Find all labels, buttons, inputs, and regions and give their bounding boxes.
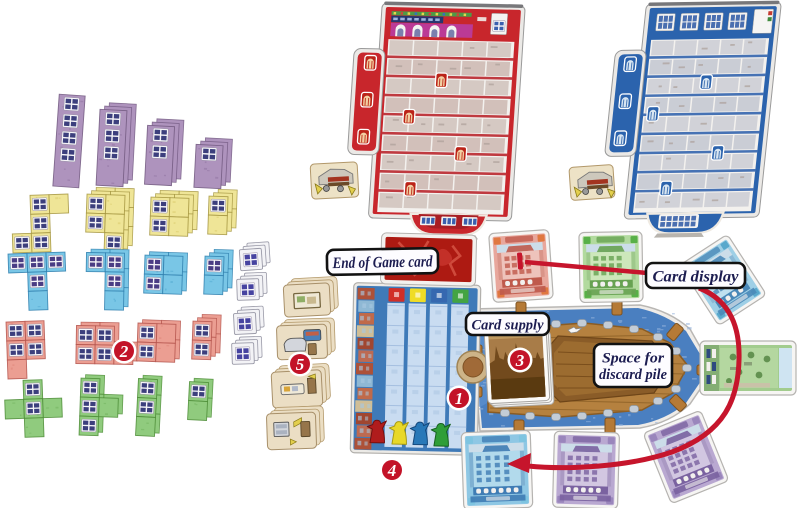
svg-text:4: 4 [387, 461, 397, 480]
svg-text:1: 1 [455, 389, 464, 408]
svg-text:2: 2 [119, 342, 129, 361]
svg-text:Card display: Card display [653, 268, 740, 285]
svg-text:Space for: Space for [602, 351, 664, 367]
svg-text:discard pile: discard pile [599, 367, 668, 383]
svg-text:Card supply: Card supply [472, 317, 544, 333]
svg-text:5: 5 [296, 355, 305, 374]
svg-text:End of Game card: End of Game card [332, 253, 434, 272]
svg-text:3: 3 [515, 351, 525, 370]
